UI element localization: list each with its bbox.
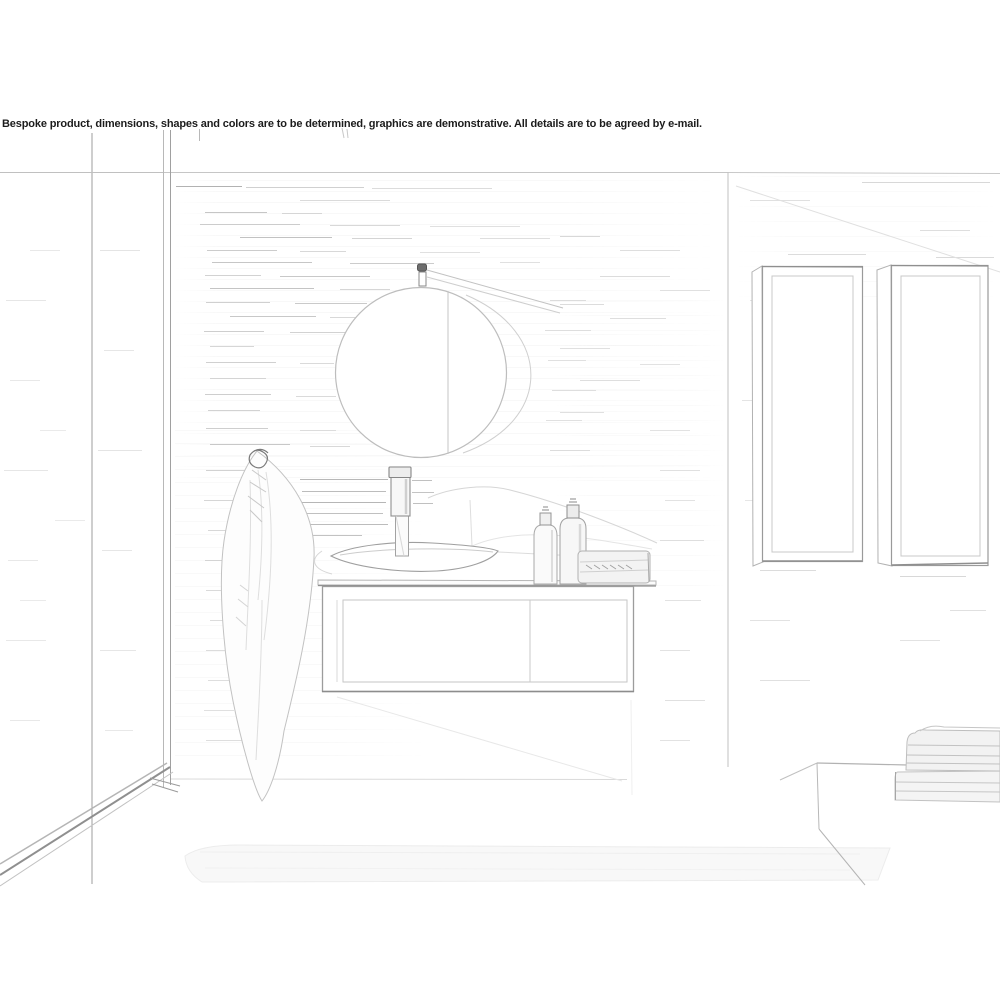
hanger-knob: [418, 264, 427, 271]
glass-bottom-rail: [0, 767, 170, 875]
shower-glass-partition: [0, 130, 180, 886]
bathroom-sketch: [0, 0, 1000, 1000]
right-wall-perspective-line: [736, 186, 1000, 272]
bath-mat: [185, 845, 890, 882]
tap-spout-cap: [389, 467, 411, 478]
soap-bottle-right-cap: [567, 505, 579, 518]
glass-bottom-rail: [0, 772, 173, 886]
cabinet-side-panel: [752, 266, 763, 566]
cabinet-top-edge: [891, 266, 988, 267]
hanger-bracket: [419, 272, 426, 286]
towel-stack-lower: [895, 771, 1000, 802]
mirror-face: [336, 288, 507, 458]
right-wall-top-edge: [728, 173, 1000, 174]
bench-towel-stacks: [895, 726, 1000, 802]
soap-bottle-left-pump: [542, 507, 549, 510]
round-mirror: [336, 264, 564, 458]
bath-mat-outline: [185, 845, 890, 882]
cabinet-front: [892, 266, 989, 566]
soap-bottle-left: [534, 525, 557, 584]
vanity-unit: [318, 580, 656, 692]
sink-left-sweep: [315, 551, 332, 574]
towel-drape-outline: [221, 451, 314, 801]
soap-bottle-right-pump: [569, 499, 577, 502]
decor-curve: [470, 500, 472, 546]
bench-left-edge: [817, 763, 819, 829]
tall-wall-cabinet-right: [877, 265, 988, 566]
towel-on-hook: [221, 449, 314, 801]
soap-bottle-left-cap: [540, 513, 551, 525]
cabinet-front: [763, 267, 863, 562]
disclaimer-text: Bespoke product, dimensions, shapes and …: [2, 118, 702, 130]
rail-floor-junction-scribble: [150, 778, 180, 792]
floor-shadow-line: [337, 697, 622, 781]
vanity-cabinet: [323, 587, 634, 692]
bench-back-edge: [780, 763, 817, 780]
towel-stack-upper: [906, 730, 1000, 771]
tall-wall-cabinet-left: [752, 266, 863, 566]
cabinet-side-panel: [877, 265, 892, 566]
glass-bottom-rail: [0, 763, 167, 864]
sketch-canvas: Bespoke product, dimensions, shapes and …: [0, 0, 1000, 1000]
sink-basin: [331, 543, 498, 572]
floor-shadow-line: [631, 700, 632, 795]
counter-towels: [578, 551, 650, 583]
back-wall-base-line: [170, 779, 627, 780]
cabinet-top-edge: [762, 267, 863, 268]
bench-top-edge: [817, 763, 908, 765]
